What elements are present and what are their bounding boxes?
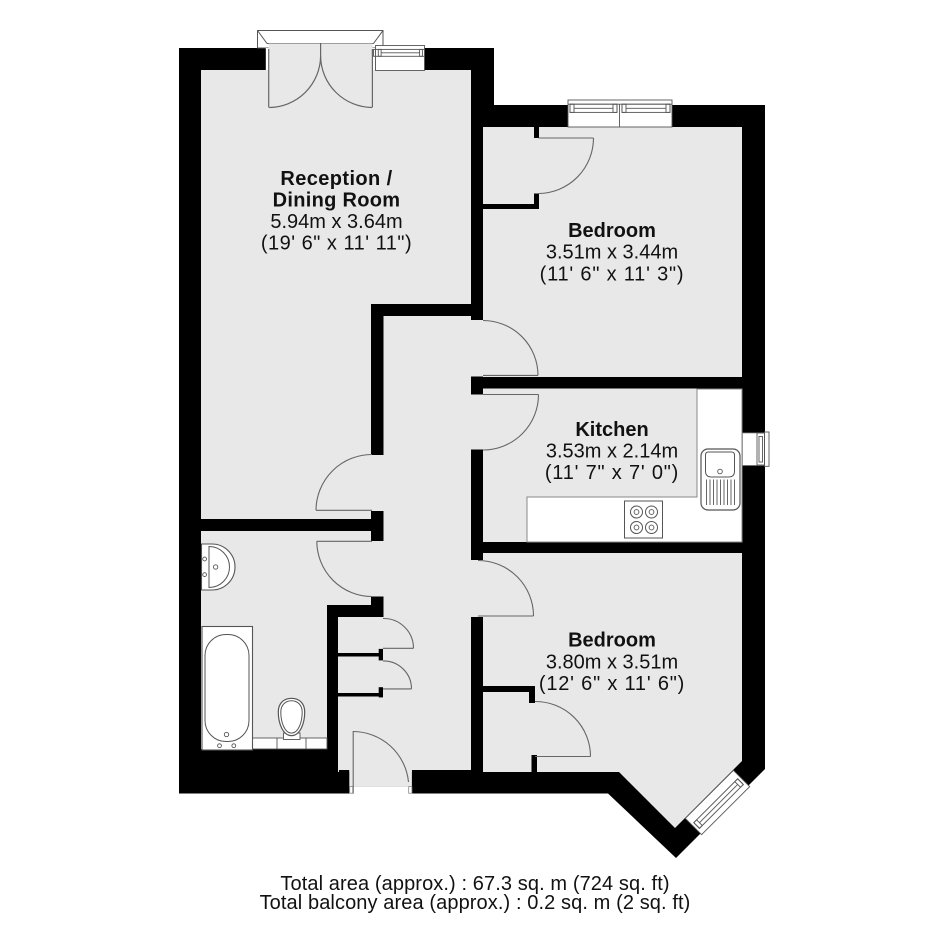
svg-text:Dining Room: Dining Room [273, 190, 401, 212]
svg-text:3.51m x 3.44m: 3.51m x 3.44m [546, 242, 678, 264]
svg-text:Kitchen: Kitchen [575, 419, 648, 441]
svg-text:Bedroom: Bedroom [568, 630, 656, 652]
svg-text:5.94m x 3.64m: 5.94m x 3.64m [270, 211, 402, 233]
svg-text:(12' 6" x 11' 6"): (12' 6" x 11' 6") [539, 673, 685, 695]
svg-text:3.80m x 3.51m: 3.80m x 3.51m [546, 651, 678, 673]
svg-text:(11' 7" x 7' 0"): (11' 7" x 7' 0") [545, 462, 679, 484]
svg-text:(11' 6" x 11' 3"): (11' 6" x 11' 3") [540, 263, 685, 285]
svg-text:Reception /: Reception / [280, 168, 392, 190]
svg-text:Total balcony area (approx.) :: Total balcony area (approx.) : 0.2 sq. m… [260, 892, 691, 914]
svg-text:(19' 6" x 11' 11"): (19' 6" x 11' 11") [261, 233, 412, 255]
svg-text:Bedroom: Bedroom [568, 220, 656, 242]
svg-text:3.53m x 2.14m: 3.53m x 2.14m [546, 441, 678, 463]
